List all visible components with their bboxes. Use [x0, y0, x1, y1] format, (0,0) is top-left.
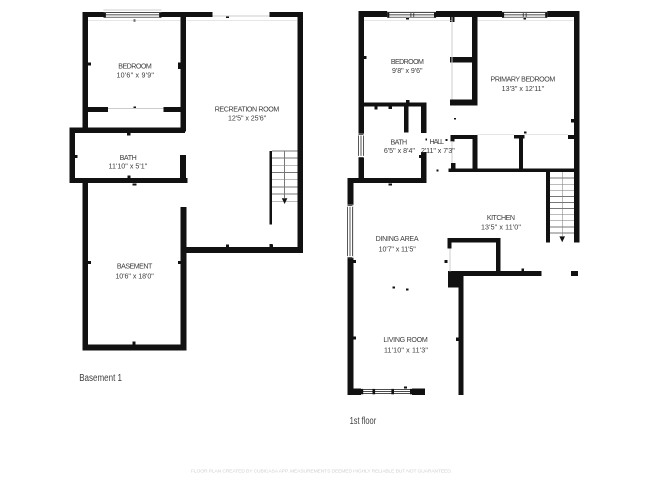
svg-text:10'6" x 18'0": 10'6" x 18'0": [115, 273, 154, 281]
svg-text:FLOOR PLAN CREATED BY CUBICASA: FLOOR PLAN CREATED BY CUBICASA APP. MEAS…: [191, 469, 452, 475]
svg-text:DINING AREA: DINING AREA: [376, 235, 419, 243]
svg-text:12'5" x 25'6": 12'5" x 25'6": [228, 115, 267, 123]
svg-text:KITCHEN: KITCHEN: [487, 214, 515, 222]
svg-text:9'8" x 9'6": 9'8" x 9'6": [392, 67, 423, 75]
svg-text:HALL: HALL: [430, 138, 445, 146]
svg-text:BEDROOM: BEDROOM: [391, 58, 424, 66]
svg-text:13'3" x 12'11": 13'3" x 12'11": [502, 85, 545, 93]
svg-text:6'5" x 8'4": 6'5" x 8'4": [384, 147, 416, 155]
svg-text:13'5" x 11'0": 13'5" x 11'0": [481, 223, 521, 231]
svg-text:10'6" x 9'9": 10'6" x 9'9": [117, 71, 155, 79]
svg-text:BATH: BATH: [120, 154, 137, 162]
svg-text:11'10" x 5'1": 11'10" x 5'1": [109, 163, 148, 171]
svg-text:11'10" x 11'3": 11'10" x 11'3": [384, 347, 428, 355]
svg-text:LIVING ROOM: LIVING ROOM: [383, 336, 427, 344]
svg-text:BASEMENT: BASEMENT: [117, 263, 153, 271]
svg-text:10'7" x 11'5": 10'7" x 11'5": [379, 245, 417, 253]
svg-text:BATH: BATH: [391, 138, 408, 146]
svg-text:1st floor: 1st floor: [350, 416, 377, 427]
svg-text:RECREATION ROOM: RECREATION ROOM: [215, 105, 280, 113]
svg-text:PRIMARY BEDROOM: PRIMARY BEDROOM: [491, 75, 556, 83]
svg-text:Basement 1: Basement 1: [79, 373, 122, 384]
svg-text:BEDROOM: BEDROOM: [118, 62, 152, 70]
svg-text:2'11" x 7'3": 2'11" x 7'3": [421, 147, 455, 155]
